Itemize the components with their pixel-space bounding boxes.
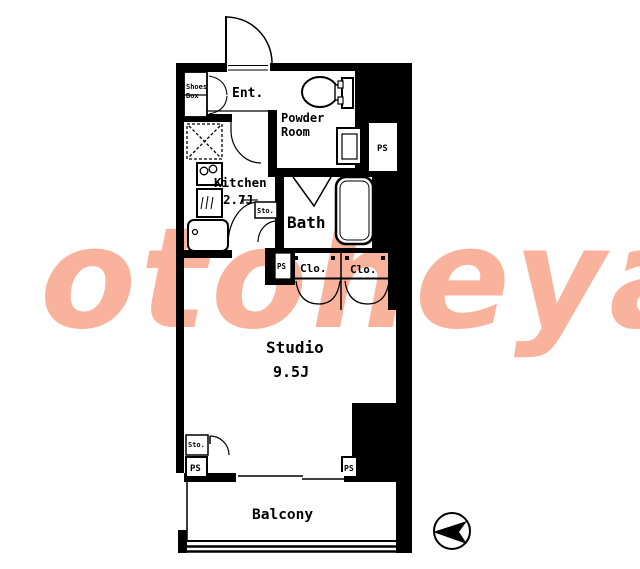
pipe-space-bottom-left: PS <box>186 457 207 477</box>
shoes-box-label-2: Box <box>186 92 199 100</box>
entrance-label: Ent. <box>232 86 263 101</box>
studio-storage-door-icon <box>210 436 229 455</box>
sink-icon <box>188 220 228 251</box>
grill-icon <box>197 189 222 217</box>
north-arrow-icon <box>433 513 470 549</box>
pipe-space-top-right: PS <box>368 122 398 172</box>
pipe-space-mid: PS <box>275 253 291 279</box>
floor-plan: Shoes Box Ent. Powder Room PS <box>0 0 640 569</box>
studio-label: Studio <box>266 338 324 357</box>
shoes-box-label-1: Shoes <box>186 83 207 91</box>
hall-storage-label: Sto. <box>257 207 274 215</box>
floor-plan-page: otoheya <box>0 0 640 569</box>
toilet-icon <box>302 77 353 108</box>
closets: Clo. Clo. <box>293 251 389 310</box>
hall-storage: Sto. <box>255 202 277 242</box>
entrance-door-icon <box>226 16 272 70</box>
balcony-label: Balcony <box>252 507 313 523</box>
studio-storage-label: Sto. <box>188 441 205 449</box>
bathtub-icon <box>336 177 373 244</box>
hall-storage-door-icon <box>258 221 277 242</box>
ps-label: PS <box>344 464 354 473</box>
closet2-label: Clo. <box>350 263 377 276</box>
studio-size-label: 9.5J <box>273 363 309 381</box>
powder-room-label-2: Room <box>281 125 310 139</box>
powder-room-label-1: Powder <box>281 111 324 125</box>
closet1-label: Clo. <box>300 262 327 275</box>
shoes-box: Shoes Box <box>184 72 227 117</box>
refrigerator-space-icon <box>187 124 222 159</box>
ps-label: PS <box>377 144 388 154</box>
studio-storage: Sto. <box>186 435 229 455</box>
ps-label: PS <box>190 464 201 474</box>
kitchen-label: Kitchen <box>214 175 267 190</box>
bath-label: Bath <box>287 213 326 232</box>
ps-label: PS <box>277 262 287 271</box>
pipe-space-bottom-right: PS <box>342 457 357 477</box>
bath-folding-door-icon <box>293 177 331 206</box>
sliding-window-icon <box>236 472 345 483</box>
hall-door-icon <box>231 122 261 163</box>
washbasin-icon <box>337 128 361 164</box>
